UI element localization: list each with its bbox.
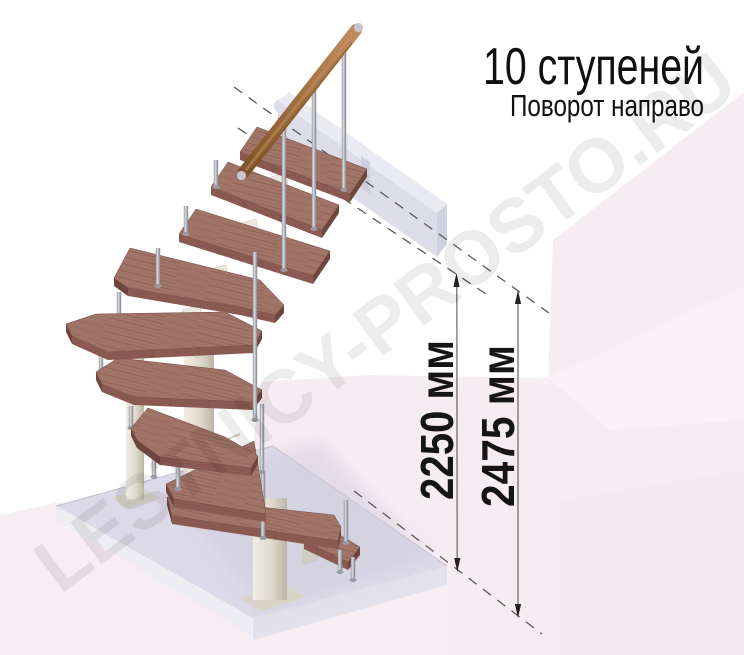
svg-text:2250 мм: 2250 мм <box>411 340 463 500</box>
svg-text:2475 мм: 2475 мм <box>472 345 524 507</box>
